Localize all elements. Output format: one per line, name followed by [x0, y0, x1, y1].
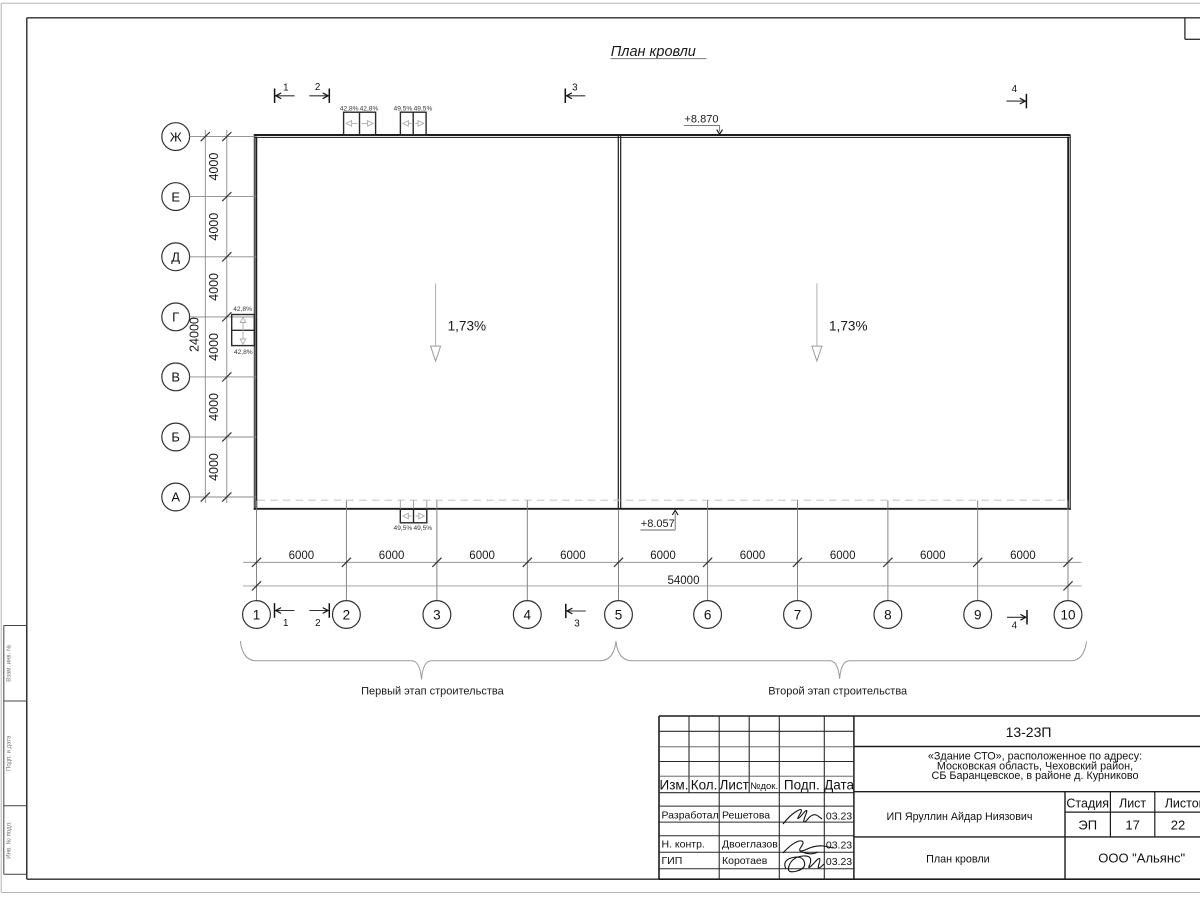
- svg-text:6000: 6000: [920, 550, 946, 562]
- svg-text:6000: 6000: [289, 550, 315, 562]
- svg-text:+8.057: +8.057: [641, 518, 675, 530]
- svg-text:3: 3: [433, 607, 441, 622]
- svg-text:Листов: Листов: [1165, 797, 1200, 811]
- svg-text:6000: 6000: [650, 550, 676, 562]
- svg-text:Инв. № подл.: Инв. № подл.: [6, 821, 13, 859]
- svg-text:Второй этап строительства: Второй этап строительства: [768, 686, 908, 698]
- svg-text:Взам. инв. №: Взам. инв. №: [6, 645, 13, 682]
- svg-text:5: 5: [615, 607, 623, 622]
- svg-text:13-23П: 13-23П: [1006, 724, 1052, 740]
- svg-text:№док.: №док.: [750, 781, 778, 792]
- svg-text:17: 17: [1125, 818, 1139, 833]
- svg-text:4000: 4000: [207, 333, 221, 361]
- svg-text:42,8%: 42,8%: [340, 105, 359, 112]
- svg-text:Подп. и дата: Подп. и дата: [7, 735, 13, 771]
- svg-text:03.23: 03.23: [826, 840, 852, 852]
- svg-text:4000: 4000: [207, 453, 221, 481]
- svg-text:6000: 6000: [469, 550, 495, 562]
- svg-text:4: 4: [1012, 84, 1018, 95]
- svg-text:6000: 6000: [560, 550, 586, 562]
- svg-text:Е: Е: [171, 189, 180, 204]
- svg-text:Г: Г: [172, 310, 179, 325]
- svg-text:4: 4: [524, 607, 532, 622]
- svg-text:А: А: [171, 490, 180, 505]
- svg-text:24000: 24000: [187, 317, 201, 352]
- svg-text:9: 9: [974, 607, 982, 622]
- svg-text:1: 1: [283, 82, 288, 93]
- svg-text:2: 2: [315, 618, 320, 629]
- svg-text:42,8%: 42,8%: [233, 306, 252, 313]
- svg-text:6000: 6000: [1010, 550, 1036, 562]
- svg-text:49,5%: 49,5%: [394, 105, 413, 112]
- svg-text:7: 7: [794, 607, 802, 622]
- svg-text:Первый этап строительства: Первый этап строительства: [361, 686, 505, 698]
- svg-text:Н. контр.: Н. контр.: [662, 839, 705, 851]
- svg-text:2: 2: [343, 607, 351, 622]
- svg-text:49,5%: 49,5%: [394, 525, 413, 532]
- svg-text:6000: 6000: [830, 550, 856, 562]
- svg-text:4000: 4000: [207, 213, 221, 241]
- svg-text:Стадия: Стадия: [1066, 797, 1109, 811]
- svg-text:6000: 6000: [379, 550, 405, 562]
- svg-text:Подп.: Подп.: [784, 778, 820, 793]
- svg-text:ГИП: ГИП: [662, 855, 683, 867]
- svg-text:Разработал: Разработал: [662, 810, 719, 822]
- svg-text:Б: Б: [171, 430, 180, 445]
- svg-text:ИП Яруллин Айдар Ниязович: ИП Яруллин Айдар Ниязович: [887, 811, 1033, 823]
- svg-text:03.23: 03.23: [826, 811, 852, 823]
- svg-text:6: 6: [704, 607, 712, 622]
- svg-text:1,73%: 1,73%: [448, 318, 487, 333]
- svg-text:Решетова: Решетова: [722, 810, 770, 822]
- svg-text:4000: 4000: [207, 273, 221, 301]
- svg-text:6000: 6000: [740, 550, 766, 562]
- svg-text:1,73%: 1,73%: [829, 318, 868, 333]
- svg-text:В: В: [171, 370, 180, 385]
- svg-text:Д: Д: [171, 250, 180, 265]
- svg-text:1: 1: [253, 607, 261, 622]
- svg-text:Кол.: Кол.: [691, 778, 718, 793]
- svg-text:22: 22: [1171, 818, 1185, 833]
- svg-text:Лист: Лист: [720, 778, 749, 793]
- svg-text:СБ Баранцевское, в районе д. К: СБ Баранцевское, в районе д. Курниково: [932, 770, 1139, 782]
- svg-text:Дата: Дата: [824, 778, 854, 793]
- svg-text:3: 3: [574, 618, 580, 629]
- svg-text:49,5%: 49,5%: [414, 105, 433, 112]
- svg-text:Коротаев: Коротаев: [722, 855, 768, 867]
- svg-text:4: 4: [1012, 620, 1018, 631]
- svg-text:10: 10: [1060, 607, 1075, 622]
- svg-text:Изм.: Изм.: [660, 778, 689, 793]
- svg-text:03.23: 03.23: [826, 856, 852, 868]
- svg-text:Лист: Лист: [1119, 797, 1146, 811]
- svg-text:49,5%: 49,5%: [413, 525, 432, 532]
- svg-text:Ж: Ж: [170, 129, 182, 144]
- svg-text:2: 2: [315, 82, 320, 93]
- svg-text:42,8%: 42,8%: [360, 105, 379, 112]
- svg-text:ЭП: ЭП: [1078, 818, 1097, 833]
- svg-text:54000: 54000: [668, 575, 700, 587]
- svg-text:Двоеглазов: Двоеглазов: [722, 839, 778, 851]
- svg-text:3: 3: [572, 82, 578, 93]
- svg-text:План кровли: План кровли: [611, 44, 696, 60]
- svg-text:+8.870: +8.870: [685, 113, 719, 125]
- svg-text:8: 8: [884, 607, 892, 622]
- svg-text:ООО "Альянс": ООО "Альянс": [1098, 851, 1185, 866]
- svg-text:4000: 4000: [207, 153, 221, 181]
- svg-text:4000: 4000: [207, 393, 221, 421]
- svg-text:1: 1: [283, 618, 288, 629]
- svg-text:42,8%: 42,8%: [234, 349, 253, 356]
- svg-text:План кровли: План кровли: [926, 853, 990, 865]
